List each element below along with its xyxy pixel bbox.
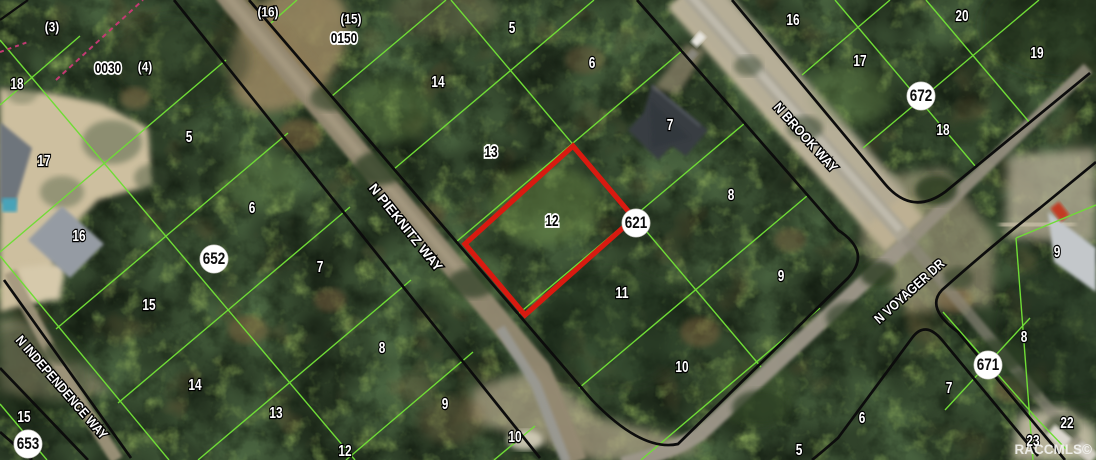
svg-text:18: 18	[936, 122, 949, 139]
svg-text:9: 9	[1054, 244, 1061, 261]
svg-text:6: 6	[859, 410, 866, 427]
svg-text:19: 19	[1030, 45, 1043, 62]
svg-text:17: 17	[37, 153, 50, 170]
svg-text:17: 17	[853, 53, 866, 70]
svg-text:7: 7	[667, 117, 674, 134]
svg-text:18: 18	[10, 76, 23, 93]
svg-text:0030: 0030	[95, 60, 121, 77]
svg-text:653: 653	[17, 435, 40, 453]
svg-text:9: 9	[442, 396, 449, 413]
svg-text:10: 10	[508, 429, 521, 446]
svg-text:9: 9	[778, 268, 785, 285]
svg-text:6: 6	[589, 55, 596, 72]
svg-text:5: 5	[796, 442, 803, 459]
svg-text:(15): (15)	[341, 11, 362, 27]
svg-text:RACCMLS©: RACCMLS©	[1015, 442, 1092, 457]
svg-text:5: 5	[186, 129, 193, 146]
svg-text:6: 6	[249, 200, 256, 217]
svg-text:15: 15	[142, 297, 155, 314]
svg-text:671: 671	[977, 356, 1000, 374]
svg-text:7: 7	[317, 259, 324, 276]
svg-text:621: 621	[625, 214, 648, 232]
svg-text:16: 16	[72, 228, 85, 245]
svg-text:7: 7	[946, 380, 953, 397]
svg-text:11: 11	[615, 285, 629, 302]
svg-text:14: 14	[431, 74, 444, 91]
svg-text:22: 22	[1060, 415, 1073, 432]
svg-text:8: 8	[728, 187, 735, 204]
svg-text:16: 16	[786, 12, 799, 29]
svg-text:13: 13	[269, 405, 282, 422]
svg-text:0150: 0150	[331, 30, 357, 47]
svg-text:(4): (4)	[138, 59, 152, 75]
svg-text:(16): (16)	[258, 4, 279, 20]
svg-text:672: 672	[910, 87, 933, 105]
svg-text:10: 10	[675, 359, 688, 376]
svg-text:20: 20	[955, 8, 968, 25]
svg-text:652: 652	[203, 250, 226, 268]
svg-text:8: 8	[379, 340, 386, 357]
svg-text:8: 8	[1021, 329, 1028, 346]
svg-text:12: 12	[338, 443, 351, 460]
svg-text:13: 13	[484, 144, 497, 161]
svg-text:(3): (3)	[45, 19, 59, 35]
svg-text:15: 15	[17, 409, 30, 426]
svg-text:14: 14	[188, 377, 201, 394]
svg-text:12: 12	[545, 213, 558, 230]
svg-text:5: 5	[509, 20, 516, 37]
